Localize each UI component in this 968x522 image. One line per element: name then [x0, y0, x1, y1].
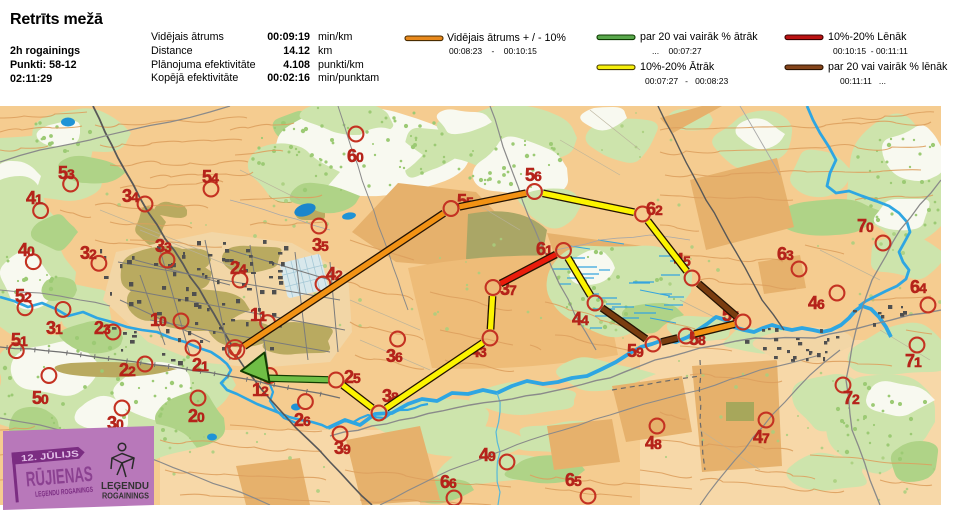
svg-text:59: 59 [627, 341, 644, 361]
svg-text:32: 32 [80, 243, 97, 263]
svg-text:20: 20 [188, 406, 205, 426]
svg-text:23: 23 [94, 318, 111, 338]
svg-text:72: 72 [843, 388, 860, 408]
svg-text:63: 63 [777, 244, 794, 264]
svg-text:70: 70 [857, 216, 874, 236]
svg-text:46: 46 [808, 293, 825, 313]
svg-text:49: 49 [479, 445, 496, 465]
svg-text:36: 36 [386, 346, 403, 366]
svg-text:50: 50 [32, 388, 49, 408]
svg-text:10: 10 [150, 310, 167, 330]
svg-text:22: 22 [119, 360, 136, 380]
svg-text:56: 56 [525, 165, 542, 185]
svg-text:31: 31 [46, 318, 63, 338]
svg-text:11: 11 [250, 305, 267, 325]
svg-text:52: 52 [15, 286, 32, 306]
svg-text:LEĢENDU: LEĢENDU [101, 481, 149, 492]
svg-text:64: 64 [910, 277, 927, 297]
svg-text:44: 44 [572, 309, 589, 329]
svg-text:21: 21 [192, 355, 209, 375]
svg-text:62: 62 [646, 199, 663, 219]
svg-text:54: 54 [202, 167, 219, 187]
svg-text:24: 24 [230, 258, 247, 278]
svg-text:60: 60 [347, 146, 364, 166]
svg-text:47: 47 [753, 427, 770, 447]
svg-text:41: 41 [26, 188, 43, 208]
svg-text:53: 53 [58, 163, 75, 183]
svg-text:34: 34 [122, 186, 139, 206]
svg-text:66: 66 [440, 472, 457, 492]
svg-text:39: 39 [334, 438, 351, 458]
svg-text:33: 33 [155, 236, 172, 256]
svg-text:65: 65 [565, 470, 582, 490]
svg-text:51: 51 [11, 330, 28, 350]
svg-text:71: 71 [905, 351, 922, 371]
svg-text:40: 40 [18, 240, 35, 260]
svg-text:26: 26 [294, 410, 311, 430]
svg-text:48: 48 [645, 433, 662, 453]
svg-text:12: 12 [252, 380, 269, 400]
svg-text:35: 35 [312, 235, 329, 255]
svg-text:ROGAININGS: ROGAININGS [102, 492, 150, 501]
